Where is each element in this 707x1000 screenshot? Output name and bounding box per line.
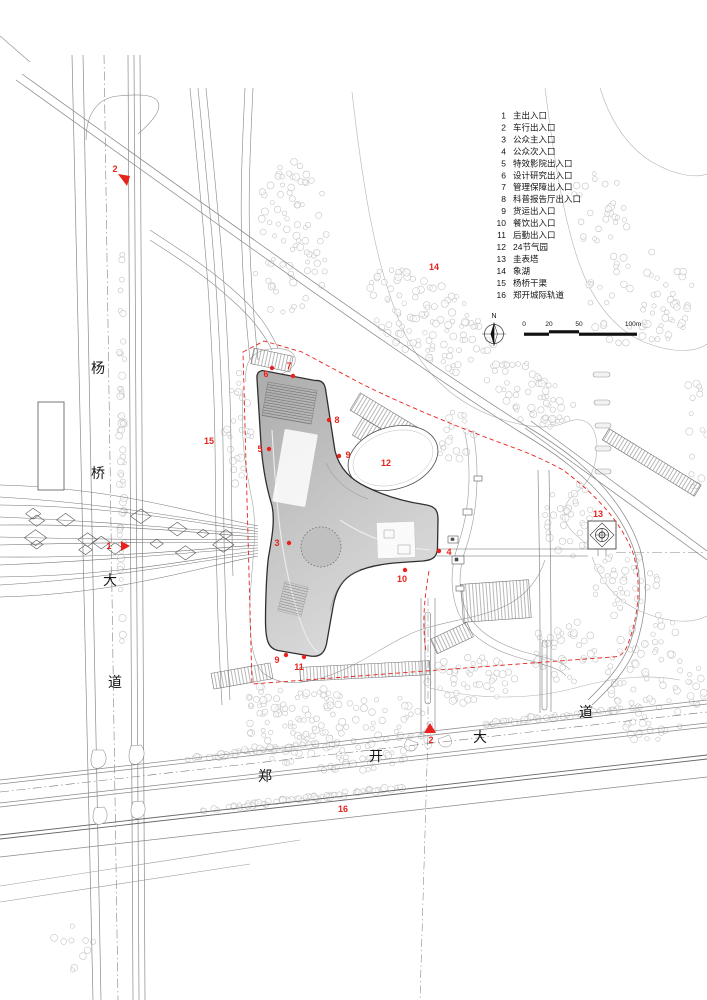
tree: [402, 301, 407, 306]
marker-number: 3: [274, 538, 279, 548]
tree: [611, 708, 617, 714]
tree: [671, 319, 675, 323]
tree: [294, 222, 300, 228]
marker-number: 8: [334, 415, 339, 425]
tree: [651, 632, 656, 637]
tree: [120, 310, 126, 316]
tree: [323, 730, 329, 736]
tree: [641, 640, 648, 647]
tree: [633, 586, 638, 591]
marker-number: 13: [593, 509, 603, 519]
tree: [605, 669, 610, 674]
tree: [670, 291, 675, 296]
road-edge: [0, 700, 707, 780]
tree: [117, 566, 123, 572]
tree: [460, 700, 467, 707]
tree: [618, 586, 622, 590]
marker-number: 5: [257, 444, 262, 454]
tree: [647, 571, 652, 576]
tree: [119, 614, 126, 621]
tree: [237, 381, 241, 385]
tree: [614, 180, 619, 185]
tree: [413, 315, 420, 322]
rail-line: [0, 759, 707, 839]
tree: [641, 307, 646, 312]
tree: [543, 400, 549, 406]
tree: [432, 320, 439, 327]
tree: [571, 554, 575, 558]
marker-dot: [267, 447, 271, 451]
boat: [595, 446, 611, 451]
tree: [672, 629, 679, 636]
tree: [385, 297, 390, 302]
tree: [571, 490, 578, 497]
tree: [642, 715, 646, 719]
tree: [80, 953, 87, 960]
tree: [308, 795, 312, 799]
tree: [61, 939, 67, 945]
marker-number: 4: [446, 547, 451, 557]
tree: [84, 947, 91, 954]
tree: [490, 687, 495, 692]
tree: [118, 386, 122, 390]
tree: [278, 165, 283, 170]
tree: [367, 285, 374, 292]
tree: [372, 788, 379, 795]
tree: [498, 661, 503, 666]
tree: [381, 784, 388, 791]
tree: [410, 276, 415, 281]
tree: [253, 271, 257, 275]
tree: [658, 726, 664, 732]
tree: [344, 724, 349, 729]
rail-platform-strip: [602, 429, 701, 497]
tree: [277, 191, 283, 197]
tree: [442, 353, 447, 358]
tree: [613, 602, 617, 606]
marker-number: 10: [397, 574, 407, 584]
tree: [513, 405, 517, 409]
building-footprint: [257, 371, 438, 657]
tree: [543, 512, 548, 517]
tree: [566, 624, 572, 630]
tree: [258, 215, 265, 222]
tree: [304, 250, 309, 255]
lattice-bridge: [0, 485, 258, 597]
tree: [241, 466, 246, 471]
tree: [687, 693, 694, 700]
tree: [548, 425, 553, 430]
tree: [256, 683, 263, 690]
tree: [538, 380, 545, 387]
tree: [339, 718, 346, 725]
tree: [623, 224, 630, 231]
tree: [429, 332, 436, 339]
tree: [265, 720, 270, 725]
tree: [462, 337, 467, 342]
tree: [465, 654, 471, 660]
tree: [484, 683, 491, 690]
tree: [231, 480, 238, 487]
tree: [700, 428, 705, 433]
tree: [605, 206, 611, 212]
tree: [248, 696, 252, 700]
tree: [621, 281, 628, 288]
tree: [562, 515, 569, 522]
tree: [673, 685, 678, 690]
tree: [577, 643, 582, 648]
tree: [593, 237, 597, 241]
tree: [541, 665, 546, 670]
tree: [696, 666, 701, 671]
tree: [438, 451, 442, 455]
tree: [503, 689, 508, 694]
tree: [454, 690, 460, 696]
tree: [314, 716, 320, 722]
tree: [283, 226, 290, 233]
tree: [274, 206, 281, 213]
tree: [620, 591, 624, 595]
tree: [689, 472, 694, 477]
lattice-strand: [0, 556, 258, 597]
legend-item-label: 公众次入口: [513, 146, 556, 156]
tree: [360, 756, 366, 762]
tree: [549, 415, 556, 422]
tree: [510, 362, 515, 367]
tree: [662, 314, 669, 321]
tree: [324, 792, 329, 797]
railway-zhengkai-intercity: [0, 755, 707, 839]
tree: [664, 283, 669, 288]
tree: [690, 395, 696, 401]
scale-tick-label: 50: [575, 321, 583, 328]
tree: [438, 686, 443, 691]
tree: [285, 217, 290, 222]
tree: [247, 720, 254, 727]
tree: [288, 721, 293, 726]
tree: [420, 278, 427, 285]
tree: [667, 699, 671, 703]
marker-number: 2: [112, 164, 117, 174]
tree: [282, 211, 287, 216]
tree: [580, 511, 585, 516]
traffic-island: [93, 807, 107, 824]
tree: [596, 226, 602, 232]
marker-dot: [403, 568, 407, 572]
tree: [581, 638, 587, 644]
road-label-yangqiao-2: 桥: [91, 465, 105, 481]
tree: [618, 649, 623, 654]
tree: [302, 706, 309, 713]
tree: [609, 235, 613, 239]
tree: [374, 273, 381, 280]
tree: [342, 761, 349, 768]
tree: [655, 612, 661, 618]
tree: [229, 457, 236, 464]
tree: [666, 337, 670, 341]
tree: [545, 394, 549, 398]
tree: [587, 516, 593, 522]
tree: [440, 341, 447, 348]
tree: [622, 681, 626, 685]
tree: [559, 538, 566, 545]
tree: [119, 372, 126, 379]
tree: [590, 282, 594, 286]
tree: [453, 448, 460, 455]
tree: [629, 700, 634, 705]
tree: [688, 672, 692, 676]
driveway-east: [538, 470, 551, 713]
lattice-diamond: [168, 522, 187, 536]
tree: [281, 239, 286, 244]
tree: [271, 704, 278, 711]
tree: [500, 363, 505, 368]
tree: [247, 730, 252, 735]
traffic-island: [129, 745, 144, 764]
tree: [659, 677, 664, 682]
tree: [331, 792, 336, 797]
tree: [547, 634, 553, 640]
tree: [577, 530, 583, 536]
tree: [623, 340, 630, 347]
tree: [616, 340, 622, 346]
tree: [545, 641, 551, 647]
tree: [254, 696, 260, 702]
tree: [614, 264, 619, 269]
tree: [515, 386, 521, 392]
legend-item-number: 8: [501, 194, 506, 204]
tree: [455, 362, 461, 368]
tree: [684, 305, 691, 312]
tree: [602, 181, 608, 187]
tree: [564, 508, 571, 515]
tree: [302, 179, 307, 184]
tree: [529, 381, 536, 388]
legend-item-label: 设计研究出入口: [513, 170, 573, 180]
tree: [398, 696, 402, 700]
tree: [239, 473, 245, 479]
legend-item-label: 郑开城际轨道: [513, 290, 565, 300]
tree: [560, 522, 567, 529]
tree: [697, 391, 703, 397]
tree: [118, 427, 124, 433]
tree: [290, 196, 296, 202]
tree: [468, 357, 473, 362]
tree: [308, 750, 315, 757]
tree: [659, 324, 663, 328]
tree: [118, 587, 123, 592]
marker-arrow: [118, 174, 130, 186]
tree: [659, 640, 664, 645]
legend-item-number: 10: [497, 218, 507, 228]
legend-item-label: 主出入口: [513, 111, 547, 121]
legend-item-label: 24节气园: [513, 242, 548, 252]
tree: [389, 268, 394, 273]
tree: [445, 321, 452, 328]
tree: [642, 320, 647, 325]
tree: [415, 708, 421, 714]
tree: [502, 681, 508, 687]
tree: [677, 659, 682, 664]
road-edge: [549, 470, 551, 712]
tree: [655, 291, 661, 297]
legend-item-label: 餐饮出入口: [513, 218, 556, 228]
tree: [424, 312, 429, 317]
marker-number: 14: [429, 262, 439, 272]
tree: [674, 304, 681, 311]
tree: [530, 412, 534, 416]
tree: [352, 716, 359, 723]
tree: [593, 657, 599, 663]
tree: [228, 435, 232, 439]
tree: [310, 733, 316, 739]
tree: [249, 703, 253, 707]
tree: [334, 692, 341, 699]
legend-item-number: 13: [497, 254, 507, 264]
legend: 1主出入口2车行出入口3公众主入口4公众次入口5特效影院出入口6设计研究出入口7…: [497, 111, 581, 300]
tree: [690, 454, 695, 459]
tree: [550, 407, 555, 412]
marker-dot: [302, 655, 306, 659]
tree: [323, 258, 327, 262]
tree: [652, 304, 656, 308]
tree: [465, 685, 470, 690]
tree: [116, 349, 122, 355]
tree: [441, 300, 448, 307]
tree: [296, 238, 300, 242]
tree: [300, 203, 304, 207]
tree: [686, 679, 691, 684]
legend-item-label: 管理保障出入口: [513, 182, 573, 192]
tree: [465, 313, 469, 317]
north-arrow: N: [482, 313, 506, 346]
tree: [631, 687, 636, 692]
marker-arrow: [424, 723, 436, 733]
tree: [306, 260, 310, 264]
tree: [623, 724, 629, 730]
tree: [615, 698, 621, 704]
tree: [697, 675, 704, 682]
tree: [238, 415, 243, 420]
tree: [528, 714, 534, 720]
tree: [386, 322, 392, 328]
tree: [413, 288, 420, 295]
tree: [360, 705, 367, 712]
tree: [377, 269, 381, 273]
legend-item-label: 后勤出入口: [513, 230, 556, 240]
tree: [397, 784, 402, 789]
tree: [615, 215, 620, 220]
tree: [558, 404, 565, 411]
tree: [270, 201, 274, 205]
tree: [503, 397, 510, 404]
tree: [625, 558, 630, 563]
tree: [261, 208, 268, 215]
tree: [525, 361, 529, 365]
tree: [119, 257, 125, 263]
tree: [70, 924, 74, 928]
tree: [304, 268, 310, 274]
tree: [689, 412, 693, 416]
marker-dot: [270, 366, 274, 370]
tree: [69, 938, 74, 943]
lattice-diamond: [78, 533, 97, 547]
boundary-inner-segment: [424, 571, 429, 651]
tree: [119, 631, 126, 638]
roof-courtyard: [376, 521, 415, 558]
tree: [647, 696, 653, 702]
legend-item-number: 9: [501, 206, 506, 216]
tree: [572, 679, 577, 684]
scale-bar: 02050100m: [522, 321, 641, 336]
tree: [366, 767, 371, 772]
tree: [655, 276, 660, 281]
tree: [119, 577, 123, 581]
tree: [457, 348, 462, 353]
tree: [674, 268, 680, 274]
legend-item-number: 15: [497, 278, 507, 288]
tree: [264, 737, 271, 744]
tree: [473, 346, 480, 353]
tree: [529, 371, 536, 378]
tree: [603, 216, 609, 222]
tree: [453, 369, 460, 376]
lattice-strand: [0, 517, 258, 534]
tree: [450, 333, 457, 340]
tree: [300, 304, 305, 309]
tree: [446, 455, 452, 461]
tree: [403, 269, 410, 276]
tree: [592, 177, 597, 182]
tree: [587, 650, 594, 657]
tree: [261, 728, 265, 732]
road-edge: [128, 55, 133, 1000]
tree: [551, 671, 557, 677]
tree: [401, 702, 408, 709]
tree: [371, 721, 375, 725]
tree: [267, 306, 273, 312]
tree: [287, 171, 292, 176]
legend-item-number: 14: [497, 266, 507, 276]
tree: [395, 309, 401, 315]
marker-dot: [327, 418, 331, 422]
tree: [119, 510, 125, 516]
tree: [323, 232, 329, 238]
tree: [118, 288, 123, 293]
marker-dot: [337, 454, 341, 458]
tree: [119, 473, 124, 478]
marker-number: 7: [286, 361, 291, 371]
boat: [595, 423, 611, 428]
ramp-curve: [150, 230, 278, 348]
tree: [632, 661, 639, 668]
marker-number: 2: [428, 735, 433, 745]
tree: [644, 676, 649, 681]
tree: [461, 682, 466, 687]
tree: [571, 402, 576, 407]
tree: [650, 311, 654, 315]
tree: [235, 391, 239, 395]
tree: [117, 458, 124, 465]
kiosk: [456, 586, 464, 591]
tree: [119, 277, 124, 282]
tree: [270, 284, 275, 289]
marker-number: 9: [345, 450, 350, 460]
tree: [554, 628, 561, 635]
tree: [609, 578, 615, 584]
legend-item-number: 12: [497, 242, 507, 252]
tree: [697, 384, 702, 389]
